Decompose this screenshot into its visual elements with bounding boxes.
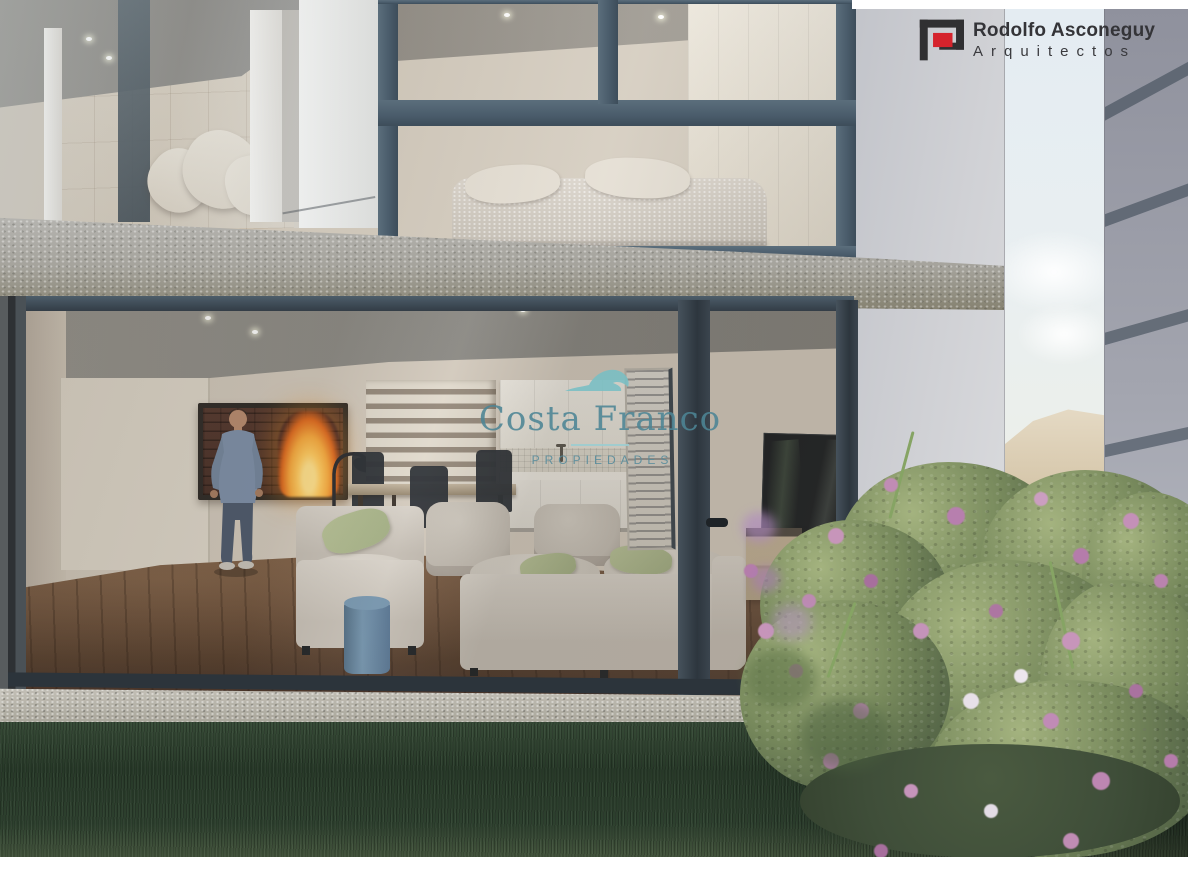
architect-name: Rodolfo Asconeguy [973,20,1155,41]
door-mullion [678,300,710,702]
page: Costa Franco PROPIEDADES Rodolfo Asconeg… [0,0,1200,869]
bokeh-flower [772,604,812,640]
watermark-name: Costa Franco [432,399,768,439]
window-frame [836,0,856,260]
cloud [1016,303,1112,365]
architect-logo: Rodolfo Asconeguy Arquitectos [918,14,1184,66]
living-room [8,298,854,704]
window-mullion [598,0,618,104]
cloud [988,230,1120,314]
photo-border-bottom [0,857,1200,869]
architect-logo-icon [918,19,964,61]
wave-icon [563,366,637,394]
bokeh-foliage [800,700,890,770]
bokeh-foliage [746,648,816,708]
bokeh-flower [752,566,780,592]
architect-title: Arquitectos [973,43,1155,61]
glass-wall-left-frame [0,296,26,706]
photo-border-top [852,0,1188,9]
door-handle [706,518,728,527]
photo-border-right [1188,0,1200,869]
balcony-glass-railing [0,0,380,228]
upper-floor [0,0,852,262]
bokeh-flower [742,512,776,542]
architectural-render: Costa Franco PROPIEDADES Rodolfo Asconeg… [0,0,1188,857]
architect-logo-text: Rodolfo Asconeguy Arquitectos [973,20,1155,61]
glass-wall-top-frame [8,296,854,311]
window-frame [378,0,398,252]
watermark: Costa Franco PROPIEDADES [432,366,768,496]
watermark-subtitle: PROPIEDADES [432,453,768,467]
watermark-divider [571,444,629,446]
